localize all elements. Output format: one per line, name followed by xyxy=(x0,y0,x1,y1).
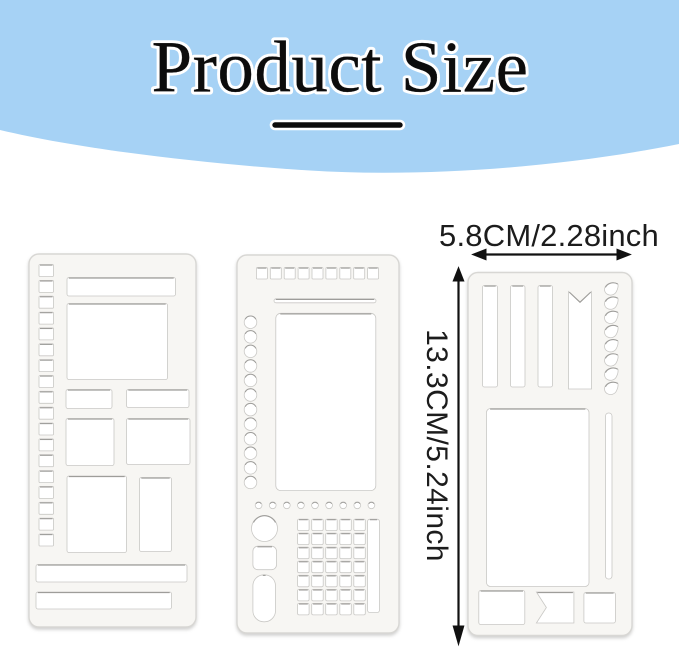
svg-text:Product Size: Product Size xyxy=(151,27,528,108)
svg-text:13.3CM/5.24inch: 13.3CM/5.24inch xyxy=(420,329,453,562)
svg-text:5.8CM/2.28inch: 5.8CM/2.28inch xyxy=(439,218,659,253)
